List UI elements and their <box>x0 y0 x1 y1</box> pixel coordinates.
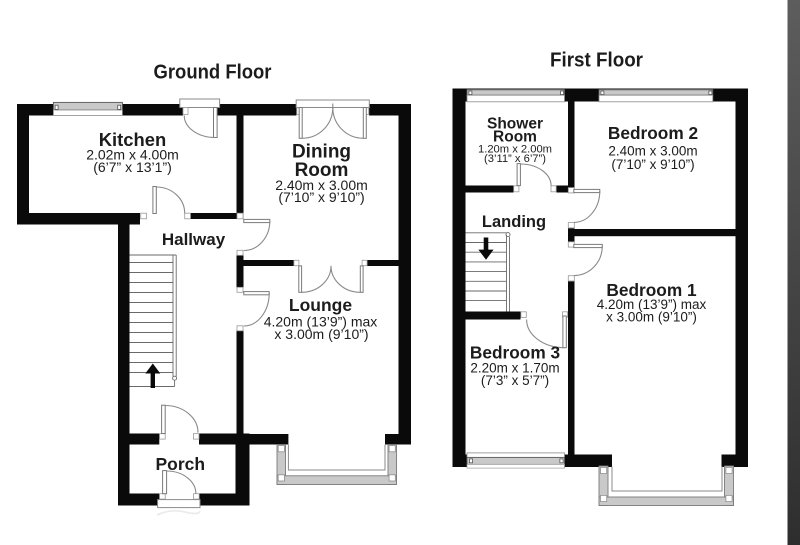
svg-text:(3’11” x 6’7”): (3’11” x 6’7”) <box>484 153 546 165</box>
svg-text:Bedroom 2: Bedroom 2 <box>608 123 698 143</box>
svg-text:Bedroom 3: Bedroom 3 <box>470 343 560 363</box>
svg-text:Ground Floor: Ground Floor <box>154 61 272 84</box>
svg-text:Porch: Porch <box>155 454 205 474</box>
svg-text:Hallway: Hallway <box>162 230 226 249</box>
svg-text:Landing: Landing <box>482 213 546 231</box>
svg-text:First Floor: First Floor <box>550 49 643 72</box>
svg-text:(7’3” x 5’7”): (7’3” x 5’7”) <box>481 373 549 388</box>
svg-text:(7’10” x 9’10”): (7’10” x 9’10”) <box>611 157 694 172</box>
svg-text:Lounge: Lounge <box>289 295 352 315</box>
svg-text:(6’7” x 13’1”): (6’7” x 13’1”) <box>93 159 172 175</box>
svg-text:(7’10” x 9’10”): (7’10” x 9’10”) <box>278 189 364 205</box>
svg-text:x 3.00m (9’10”): x 3.00m (9’10”) <box>274 326 368 342</box>
svg-text:x 3.00m (9’10”): x 3.00m (9’10”) <box>606 310 697 325</box>
